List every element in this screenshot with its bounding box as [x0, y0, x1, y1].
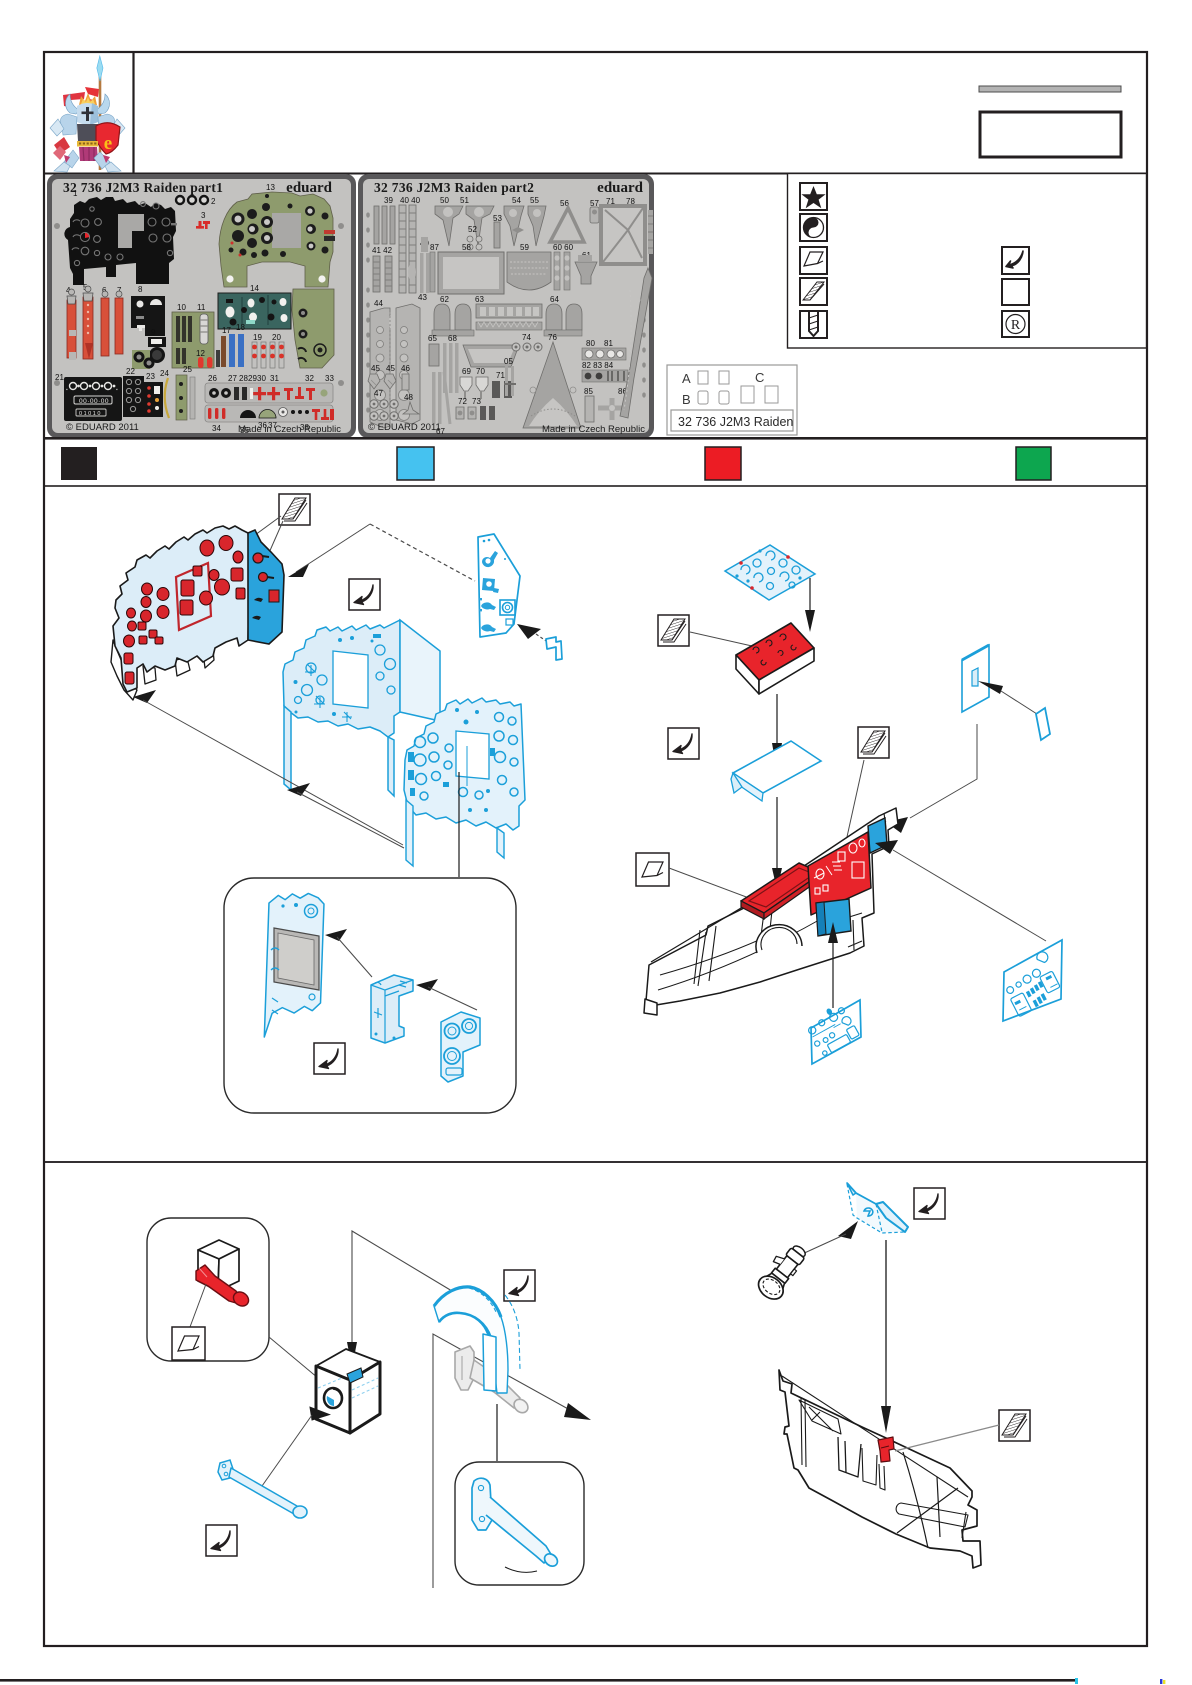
svg-text:82 83 84: 82 83 84 — [582, 361, 614, 370]
svg-text:18: 18 — [236, 323, 245, 332]
svg-text:43: 43 — [418, 293, 427, 302]
svg-text:31: 31 — [270, 374, 279, 383]
svg-text:R: R — [1011, 318, 1021, 333]
svg-text:80: 80 — [586, 339, 595, 348]
svg-text:20: 20 — [272, 333, 281, 342]
svg-text:11: 11 — [197, 303, 206, 312]
svg-text:25: 25 — [183, 365, 192, 374]
svg-text:65: 65 — [428, 334, 437, 343]
svg-text:21: 21 — [55, 373, 64, 382]
svg-text:32 736 J2M3 Raiden: 32 736 J2M3 Raiden — [678, 415, 793, 429]
svg-text:87: 87 — [430, 243, 439, 252]
svg-text:23: 23 — [146, 372, 155, 381]
svg-text:44: 44 — [374, 299, 383, 308]
svg-text:76: 76 — [548, 333, 557, 342]
svg-text:45: 45 — [371, 364, 380, 373]
svg-text:41 42: 41 42 — [372, 246, 393, 255]
svg-text:85: 85 — [584, 387, 593, 396]
svg-text:32 736 J2M3 Raiden part2: 32 736 J2M3 Raiden part2 — [374, 180, 534, 195]
svg-text:0 1 0 1 0: 0 1 0 1 0 — [79, 411, 100, 417]
svg-text:Made in Czech Republic: Made in Czech Republic — [542, 424, 645, 435]
svg-text:32: 32 — [305, 374, 314, 383]
svg-text:© EDUARD 2011: © EDUARD 2011 — [368, 422, 441, 433]
svg-text:C: C — [755, 370, 764, 385]
svg-text:60 60: 60 60 — [553, 243, 574, 252]
svg-text:54: 54 — [512, 196, 521, 205]
svg-text:▪: ▪ — [116, 387, 118, 393]
svg-text:51: 51 — [460, 196, 469, 205]
svg-text:24: 24 — [160, 369, 169, 378]
svg-text:A: A — [682, 371, 691, 386]
svg-text:2: 2 — [211, 197, 216, 206]
svg-text:40 40: 40 40 — [400, 196, 421, 205]
svg-text:30: 30 — [257, 374, 266, 383]
svg-text:34: 34 — [212, 424, 221, 433]
svg-text:32 736 J2M3 Raiden part1: 32 736 J2M3 Raiden part1 — [63, 180, 223, 195]
svg-text:14: 14 — [250, 284, 259, 293]
svg-text:27: 27 — [228, 374, 237, 383]
svg-text:72: 72 — [458, 397, 467, 406]
svg-text:1: 1 — [73, 189, 78, 198]
svg-text:e: e — [104, 133, 112, 154]
svg-text:26: 26 — [208, 374, 217, 383]
svg-text:9: 9 — [151, 328, 156, 337]
svg-text:© EDUARD 2011: © EDUARD 2011 — [66, 422, 139, 433]
svg-text:68: 68 — [448, 334, 457, 343]
svg-text:55: 55 — [530, 196, 539, 205]
svg-text:70: 70 — [476, 367, 485, 376]
svg-text:B: B — [682, 392, 691, 407]
svg-text:13: 13 — [266, 183, 275, 192]
svg-text:50: 50 — [440, 196, 449, 205]
svg-text:45: 45 — [386, 364, 395, 373]
svg-text:eduard: eduard — [597, 180, 644, 196]
svg-text:62: 62 — [440, 295, 449, 304]
svg-text:63: 63 — [475, 295, 484, 304]
svg-text:39: 39 — [384, 196, 393, 205]
svg-text:8: 8 — [138, 285, 143, 294]
svg-text:33: 33 — [325, 374, 334, 383]
svg-text:73: 73 — [472, 397, 481, 406]
svg-text:69: 69 — [462, 367, 471, 376]
svg-text:3: 3 — [201, 211, 206, 220]
svg-text:19: 19 — [253, 333, 262, 342]
svg-text:47: 47 — [374, 389, 383, 398]
svg-text:58: 58 — [462, 243, 471, 252]
svg-text:74: 74 — [522, 333, 531, 342]
svg-text:59: 59 — [520, 243, 529, 252]
svg-text:64: 64 — [550, 295, 559, 304]
svg-text:▪: ▪ — [66, 387, 68, 393]
svg-text:52: 52 — [468, 225, 477, 234]
svg-text:22: 22 — [126, 367, 135, 376]
svg-text:46: 46 — [401, 364, 410, 373]
svg-text:10: 10 — [177, 303, 186, 312]
svg-text:48: 48 — [404, 393, 413, 402]
svg-text:81: 81 — [604, 339, 613, 348]
svg-text:12: 12 — [196, 349, 205, 358]
svg-text:71: 71 — [496, 371, 505, 380]
svg-text:Made in Czech Republic: Made in Czech Republic — [238, 424, 341, 435]
svg-text:00·00·00: 00·00·00 — [79, 398, 109, 405]
svg-text:05: 05 — [504, 357, 513, 366]
svg-text:17: 17 — [222, 326, 231, 335]
